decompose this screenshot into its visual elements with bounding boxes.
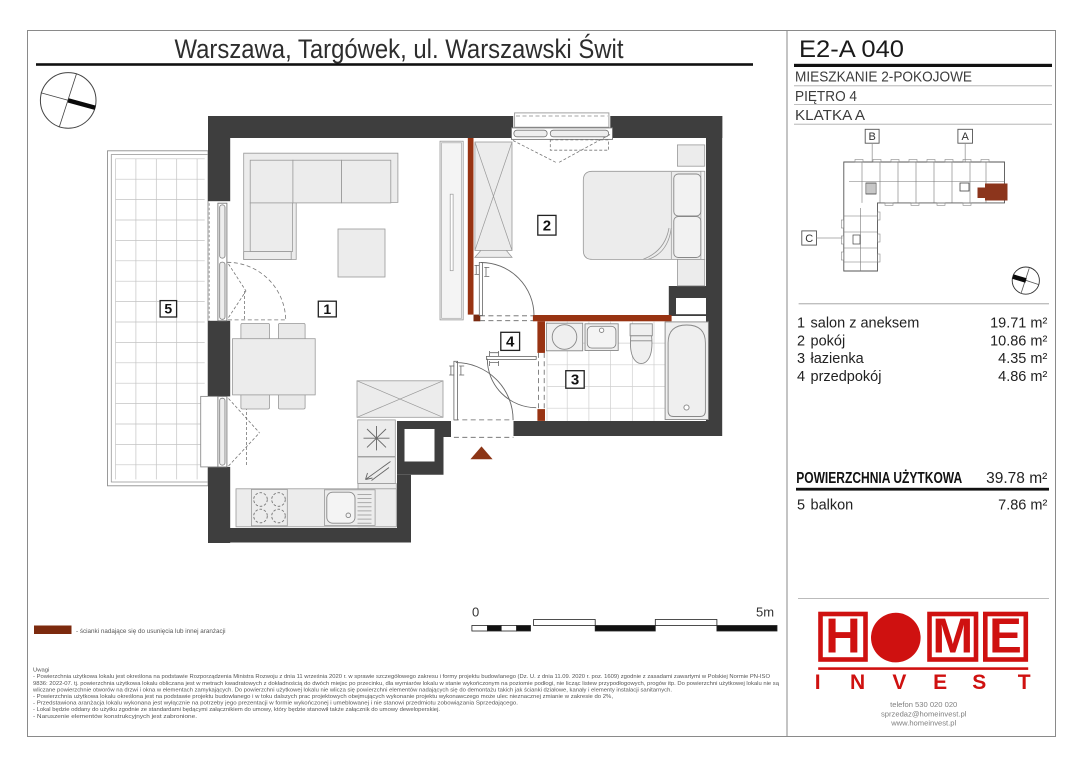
svg-text:2: 2 [543,217,551,234]
svg-text:E: E [933,671,947,694]
svg-text:1: 1 [797,316,805,332]
svg-text:E: E [989,609,1022,663]
svg-text:B: B [869,131,876,143]
svg-text:przedpokój: przedpokój [811,369,882,385]
svg-text:1: 1 [323,301,331,317]
svg-text:- ścianki nadające się do usun: - ścianki nadające się do usunięcia lub … [76,628,225,635]
svg-text:Uwagi: Uwagi [33,668,49,674]
svg-text:T: T [1018,671,1031,694]
svg-text:5m: 5m [756,605,774,620]
svg-text:10.86 m²: 10.86 m² [990,333,1047,349]
svg-text:M: M [932,609,973,663]
svg-text:A: A [962,131,970,143]
svg-text:wliczane powierzchnie otworów: wliczane powierzchnie otworów na drzwi i… [32,687,672,693]
svg-text:- Przedstawiona aranżacja loka: - Przedstawiona aranżacja lokalu wykonan… [33,701,518,707]
svg-text:- Lokal będzie oddany do użytk: - Lokal będzie oddany do użytku zgodnie … [33,707,440,713]
svg-text:pokój: pokój [811,333,846,349]
svg-text:N: N [850,671,865,694]
svg-text:3: 3 [797,351,805,367]
svg-text:7.86 m²: 7.86 m² [998,498,1047,514]
svg-text:POWIERZCHNIA UŻYTKOWA: POWIERZCHNIA UŻYTKOWA [796,470,962,487]
svg-text:www.homeinvest.pl: www.homeinvest.pl [890,719,956,728]
svg-text:5: 5 [164,301,172,317]
svg-text:Warszawa, Targówek, ul. Warsza: Warszawa, Targówek, ul. Warszawski Świt [175,34,625,64]
svg-text:4: 4 [797,369,805,385]
svg-text:4.35 m²: 4.35 m² [998,351,1047,367]
svg-text:9836: 2022-07. tj. powierzchni: 9836: 2022-07. tj. powierzchnia użytkowa… [33,681,780,687]
svg-text:S: S [972,671,986,694]
svg-text:E2-A 040: E2-A 040 [799,36,904,63]
svg-text:sprzedaz@homeinvest.pl: sprzedaz@homeinvest.pl [881,710,967,719]
svg-text:H: H [825,609,860,663]
svg-text:I: I [815,671,821,694]
svg-text:- Powierzchnia użytkowa lokalu: - Powierzchnia użytkowa lokalu określona… [33,694,613,700]
svg-text:4.86 m²: 4.86 m² [998,369,1047,385]
svg-text:telefon 530 020 020: telefon 530 020 020 [890,700,957,709]
svg-text:4: 4 [506,334,515,351]
svg-text:salon z aneksem: salon z aneksem [811,316,920,332]
svg-text:PIĘTRO 4: PIĘTRO 4 [795,88,857,105]
svg-text:39.78 m²: 39.78 m² [986,470,1047,487]
svg-text:V: V [892,671,906,694]
svg-text:C: C [805,233,813,245]
svg-text:- Naruszenie elementów konstru: - Naruszenie elementów konstrukcyjnych j… [33,714,197,720]
svg-text:balkon: balkon [811,498,854,514]
svg-text:5: 5 [797,498,805,514]
svg-text:3: 3 [571,372,579,389]
svg-text:0: 0 [472,605,479,620]
svg-text:MIESZKANIE 2-POKOJOWE: MIESZKANIE 2-POKOJOWE [795,69,972,86]
svg-text:- Powierzchnia użytkowa lokalu: - Powierzchnia użytkowa lokalu jest okre… [33,674,770,680]
svg-text:łazienka: łazienka [811,351,865,367]
svg-text:KLATKA A: KLATKA A [795,107,865,124]
svg-text:2: 2 [797,333,805,349]
svg-text:19.71 m²: 19.71 m² [990,316,1047,332]
